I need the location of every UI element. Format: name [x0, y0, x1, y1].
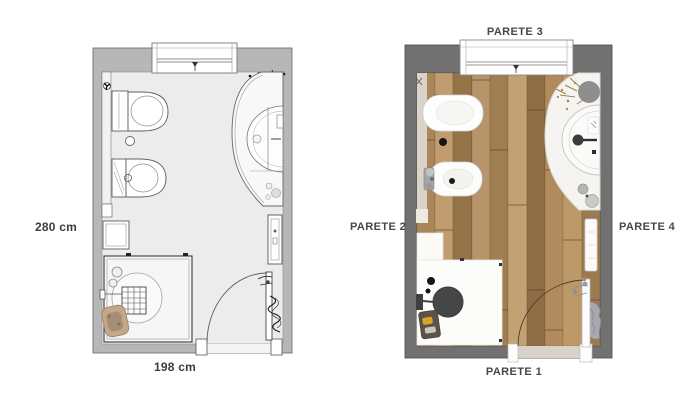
left-plan: [93, 43, 292, 355]
accessory-icon: [266, 195, 271, 200]
accessory-icon: [266, 183, 272, 189]
accessory-icon: [578, 184, 588, 194]
shower-column-icon: [416, 294, 423, 310]
wall-label-parete-1: PARETE 1: [464, 366, 564, 378]
right-bath-mat-icon: [418, 310, 441, 339]
bidet-faucet-icon: [424, 168, 434, 190]
bottle-icon: [109, 279, 117, 287]
right-toilet-icon: [423, 95, 483, 131]
shelf-icon: [103, 221, 129, 249]
valve-symbol-icon: [104, 83, 111, 90]
wall-label-parete-4: PARETE 4: [619, 221, 681, 233]
wall-label-parete-3: PARETE 3: [465, 26, 565, 38]
right-plan: [405, 40, 612, 362]
wall-label-parete-2: PARETE 2: [350, 221, 403, 233]
shower-icon: [100, 253, 192, 342]
floor-plans-graphic: [0, 0, 700, 406]
right-shower-icon: [416, 258, 502, 345]
width-dimension-label: 198 cm: [145, 360, 205, 374]
cabinet-icon: [417, 233, 443, 260]
accessory-icon: [272, 189, 281, 198]
left-window-icon: [152, 43, 237, 73]
bottle-icon: [112, 267, 122, 277]
small-shelf-icon: [416, 209, 428, 223]
right-radiator-icon: [585, 219, 597, 271]
left-radiator-icon: [268, 215, 282, 264]
right-floor-drain-icon: [439, 138, 447, 146]
floor-drain-icon: [126, 137, 135, 146]
right-window-icon: [460, 40, 573, 75]
height-dimension-label: 280 cm: [33, 220, 79, 234]
left-plan-plumbing-band: [102, 72, 112, 217]
bidet-icon: [112, 159, 166, 197]
floor-plan-figure: 280 cm 198 cm PARETE 3 PARETE 2 PARETE 4…: [0, 0, 700, 406]
toilet-icon: [112, 91, 168, 131]
faucet-icon: [573, 135, 584, 146]
shower-head-grid-icon: [122, 287, 146, 314]
